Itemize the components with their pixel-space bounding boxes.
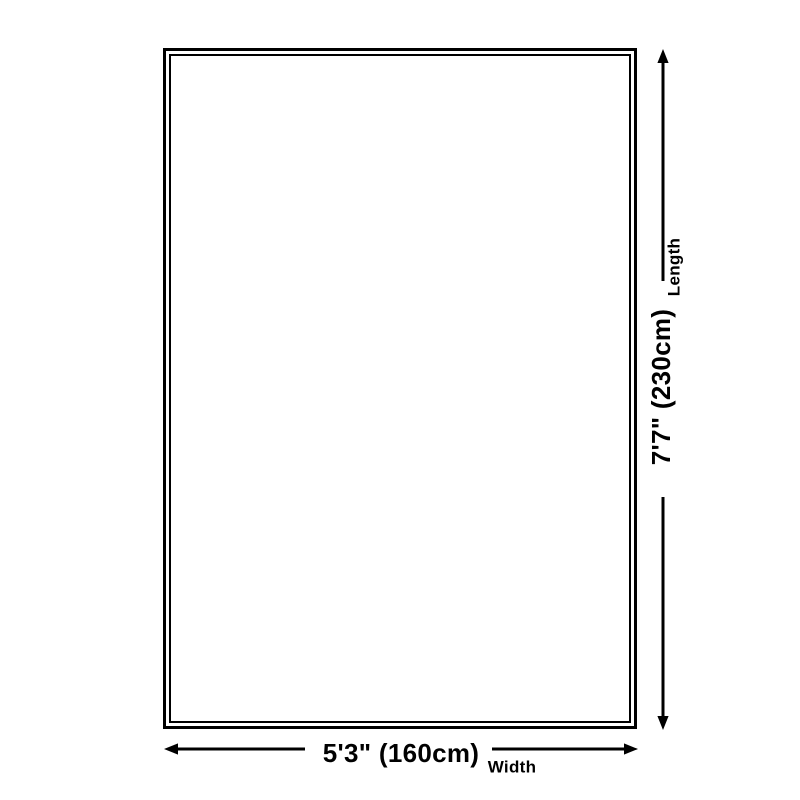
width-label: Width (488, 759, 537, 776)
length-arrowhead-down-icon (657, 716, 668, 730)
width-arrowhead-left-icon (164, 743, 178, 754)
rug-inner-border (169, 54, 631, 723)
length-value: 7'7" (230cm) (648, 309, 674, 466)
rug-outline (163, 48, 637, 729)
length-arrowhead-up-icon (657, 49, 668, 63)
size-diagram: 7'7" (230cm) Length 5'3" (160cm) Width (0, 0, 800, 800)
width-value: 5'3" (160cm) (323, 740, 480, 766)
width-arrowhead-right-icon (624, 743, 638, 754)
length-label: Length (666, 238, 683, 296)
